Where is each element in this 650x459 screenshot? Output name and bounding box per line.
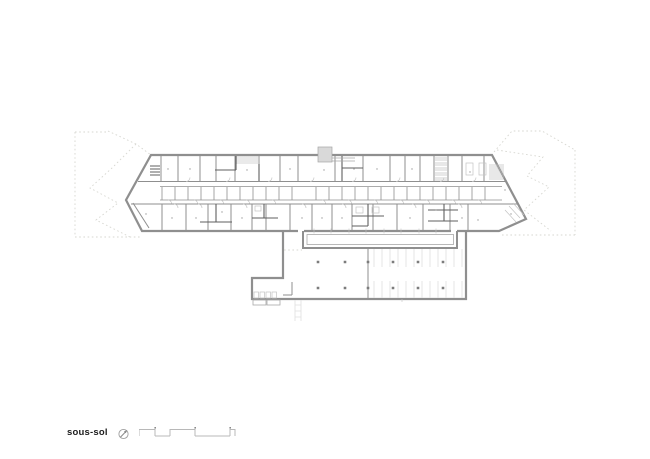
elevator-core xyxy=(318,147,332,162)
cellar-partitions xyxy=(162,187,485,200)
core-walls xyxy=(150,156,458,226)
parking-stalls xyxy=(374,249,462,298)
interior-walls xyxy=(131,156,519,231)
site-boundary-left xyxy=(75,131,151,237)
ramp-inner xyxy=(307,235,454,245)
parking-garage xyxy=(252,231,466,321)
lower-band-partitions xyxy=(162,204,468,231)
north-arrow-icon xyxy=(117,427,130,440)
ramp-outline xyxy=(303,231,457,248)
end-wall-left xyxy=(133,203,149,228)
door-swings xyxy=(168,178,482,209)
plan-footer: sous-sol xyxy=(67,426,237,440)
floor-label: sous-sol xyxy=(67,426,108,440)
scale-bar xyxy=(139,427,237,439)
storage-niche xyxy=(253,282,292,305)
floor-plan-page: sous-sol xyxy=(0,0,650,459)
floor-plan-drawing xyxy=(0,0,650,459)
structural-columns xyxy=(318,262,443,288)
exterior-stair xyxy=(295,299,402,321)
parking-outline xyxy=(252,231,466,299)
